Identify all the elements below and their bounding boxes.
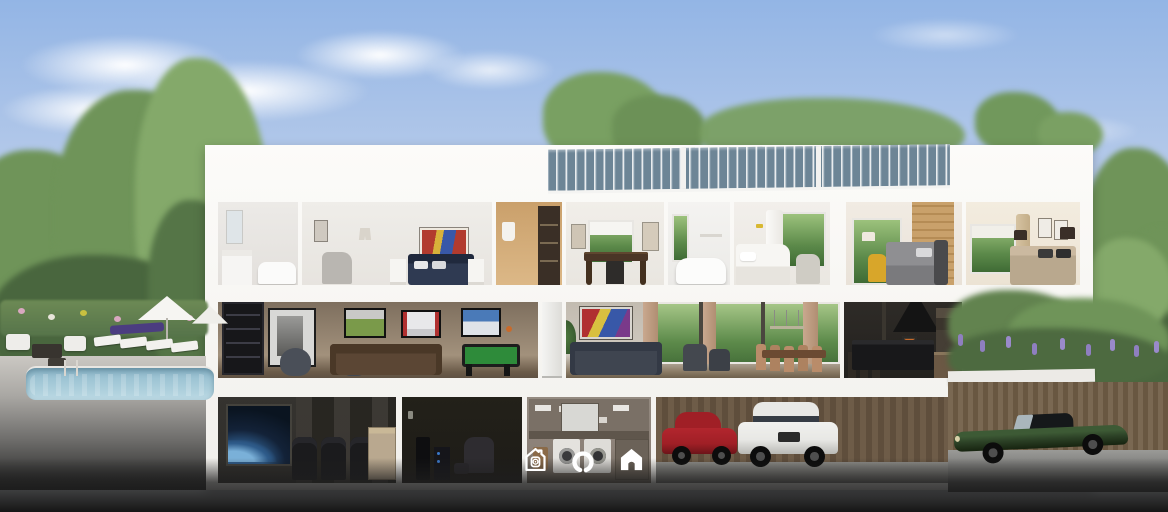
swimming-pool [26, 366, 214, 400]
home-icon [619, 447, 644, 472]
bean-bag [280, 348, 311, 376]
pillow [432, 261, 446, 269]
beige-bed [1010, 246, 1076, 285]
headboard [934, 240, 948, 285]
projection-screen-space [226, 404, 292, 466]
cloud [425, 50, 555, 90]
outdoor-table-dark [32, 344, 62, 358]
room-home-office [566, 202, 664, 285]
smart-home-cutaway-scene [0, 0, 1168, 512]
range-hood [893, 302, 939, 332]
solar-panel-divider [681, 148, 686, 189]
flower-dot [18, 308, 25, 314]
room-living-dining [566, 302, 840, 378]
home-button[interactable] [619, 447, 644, 472]
gray-sofa [570, 342, 662, 375]
solar-panels [548, 144, 950, 194]
wall-tv-art [580, 307, 632, 339]
laundry-counter [529, 431, 649, 439]
car-wheel [1082, 434, 1104, 456]
room-white-bedroom [734, 202, 830, 285]
wine-cabinet [222, 302, 264, 375]
lavender-flowers [958, 334, 963, 346]
gray-bed [886, 242, 948, 285]
tv-screen-hockey [401, 310, 441, 338]
home-security-button[interactable] [524, 446, 547, 473]
room-upper-bathroom [668, 202, 730, 285]
nightstand [468, 259, 484, 285]
room-beige-bedroom [966, 202, 1080, 285]
shelf-line [540, 224, 558, 226]
linens [535, 405, 551, 411]
desk [584, 252, 648, 261]
wall-art [642, 222, 659, 251]
outdoor-seat [6, 334, 30, 350]
refrigerator-column [542, 302, 562, 378]
bathroom-vanity [222, 250, 252, 285]
desk-leg [640, 261, 646, 285]
cloud [870, 18, 1020, 52]
pillow-dark [1056, 249, 1071, 258]
tv-screen-soccer [461, 308, 501, 337]
closet-shelving [538, 206, 560, 285]
bathroom-mirror [226, 210, 243, 244]
house-security-icon [524, 446, 547, 473]
room-walk-in-closet [496, 202, 562, 285]
room-media-game [218, 302, 538, 378]
wall-sconce [408, 411, 413, 419]
office-chair [606, 258, 624, 284]
pillow [414, 261, 428, 269]
table-lamp-dark [1060, 227, 1075, 239]
shelf-line [540, 242, 558, 244]
bathroom-window [672, 214, 689, 262]
tripod-floor-lamp [354, 228, 376, 285]
shelf [700, 234, 722, 237]
room-marble-bathroom [218, 202, 298, 285]
suv-grille [778, 432, 800, 442]
voice-assistant-button[interactable] [571, 449, 595, 475]
solar-panel-divider [816, 146, 821, 187]
table-lamp-dark [1014, 230, 1027, 240]
room-master-bedroom [302, 202, 492, 285]
pillow-dark [1038, 249, 1053, 258]
outdoor-seat [64, 336, 86, 351]
hanging-shirt [502, 222, 515, 241]
bathtub [258, 262, 296, 284]
wall-art-small [314, 220, 328, 242]
armchair [322, 252, 352, 284]
wine-shelf [226, 314, 260, 316]
nightstand [390, 259, 406, 285]
tv-screen-football [344, 308, 386, 338]
wall-art [571, 224, 586, 249]
pool-ripples [30, 374, 208, 396]
yellow-chair [868, 254, 887, 282]
pillow [740, 252, 756, 261]
laundry-shelves [529, 399, 649, 431]
room-kitchen [844, 302, 962, 378]
armchair [683, 344, 707, 371]
armchair-beige [796, 254, 820, 284]
pool-table-legs [466, 364, 510, 376]
pendant-lights [770, 310, 804, 329]
room-brick-bedroom [846, 202, 962, 285]
desk-leg [586, 261, 592, 285]
freestanding-tub [676, 258, 726, 284]
led-light [437, 452, 440, 455]
roman-shade [972, 226, 1014, 238]
basketball [506, 326, 512, 332]
sectional-sofa [330, 344, 442, 375]
table-lamp [862, 232, 875, 241]
pillow [916, 248, 932, 257]
kitchen-island [852, 340, 934, 370]
pool-ladder [64, 360, 78, 376]
assistant-ring-icon [571, 449, 595, 475]
shelf-line [540, 260, 558, 262]
wall-sconce [756, 224, 763, 228]
armchair [709, 349, 730, 371]
roller-shade [590, 222, 632, 235]
wall-art-pair [1038, 218, 1052, 238]
white-bed [736, 244, 790, 285]
bed-navy [408, 254, 474, 285]
dining-table [762, 350, 826, 358]
pinboard [561, 403, 599, 432]
